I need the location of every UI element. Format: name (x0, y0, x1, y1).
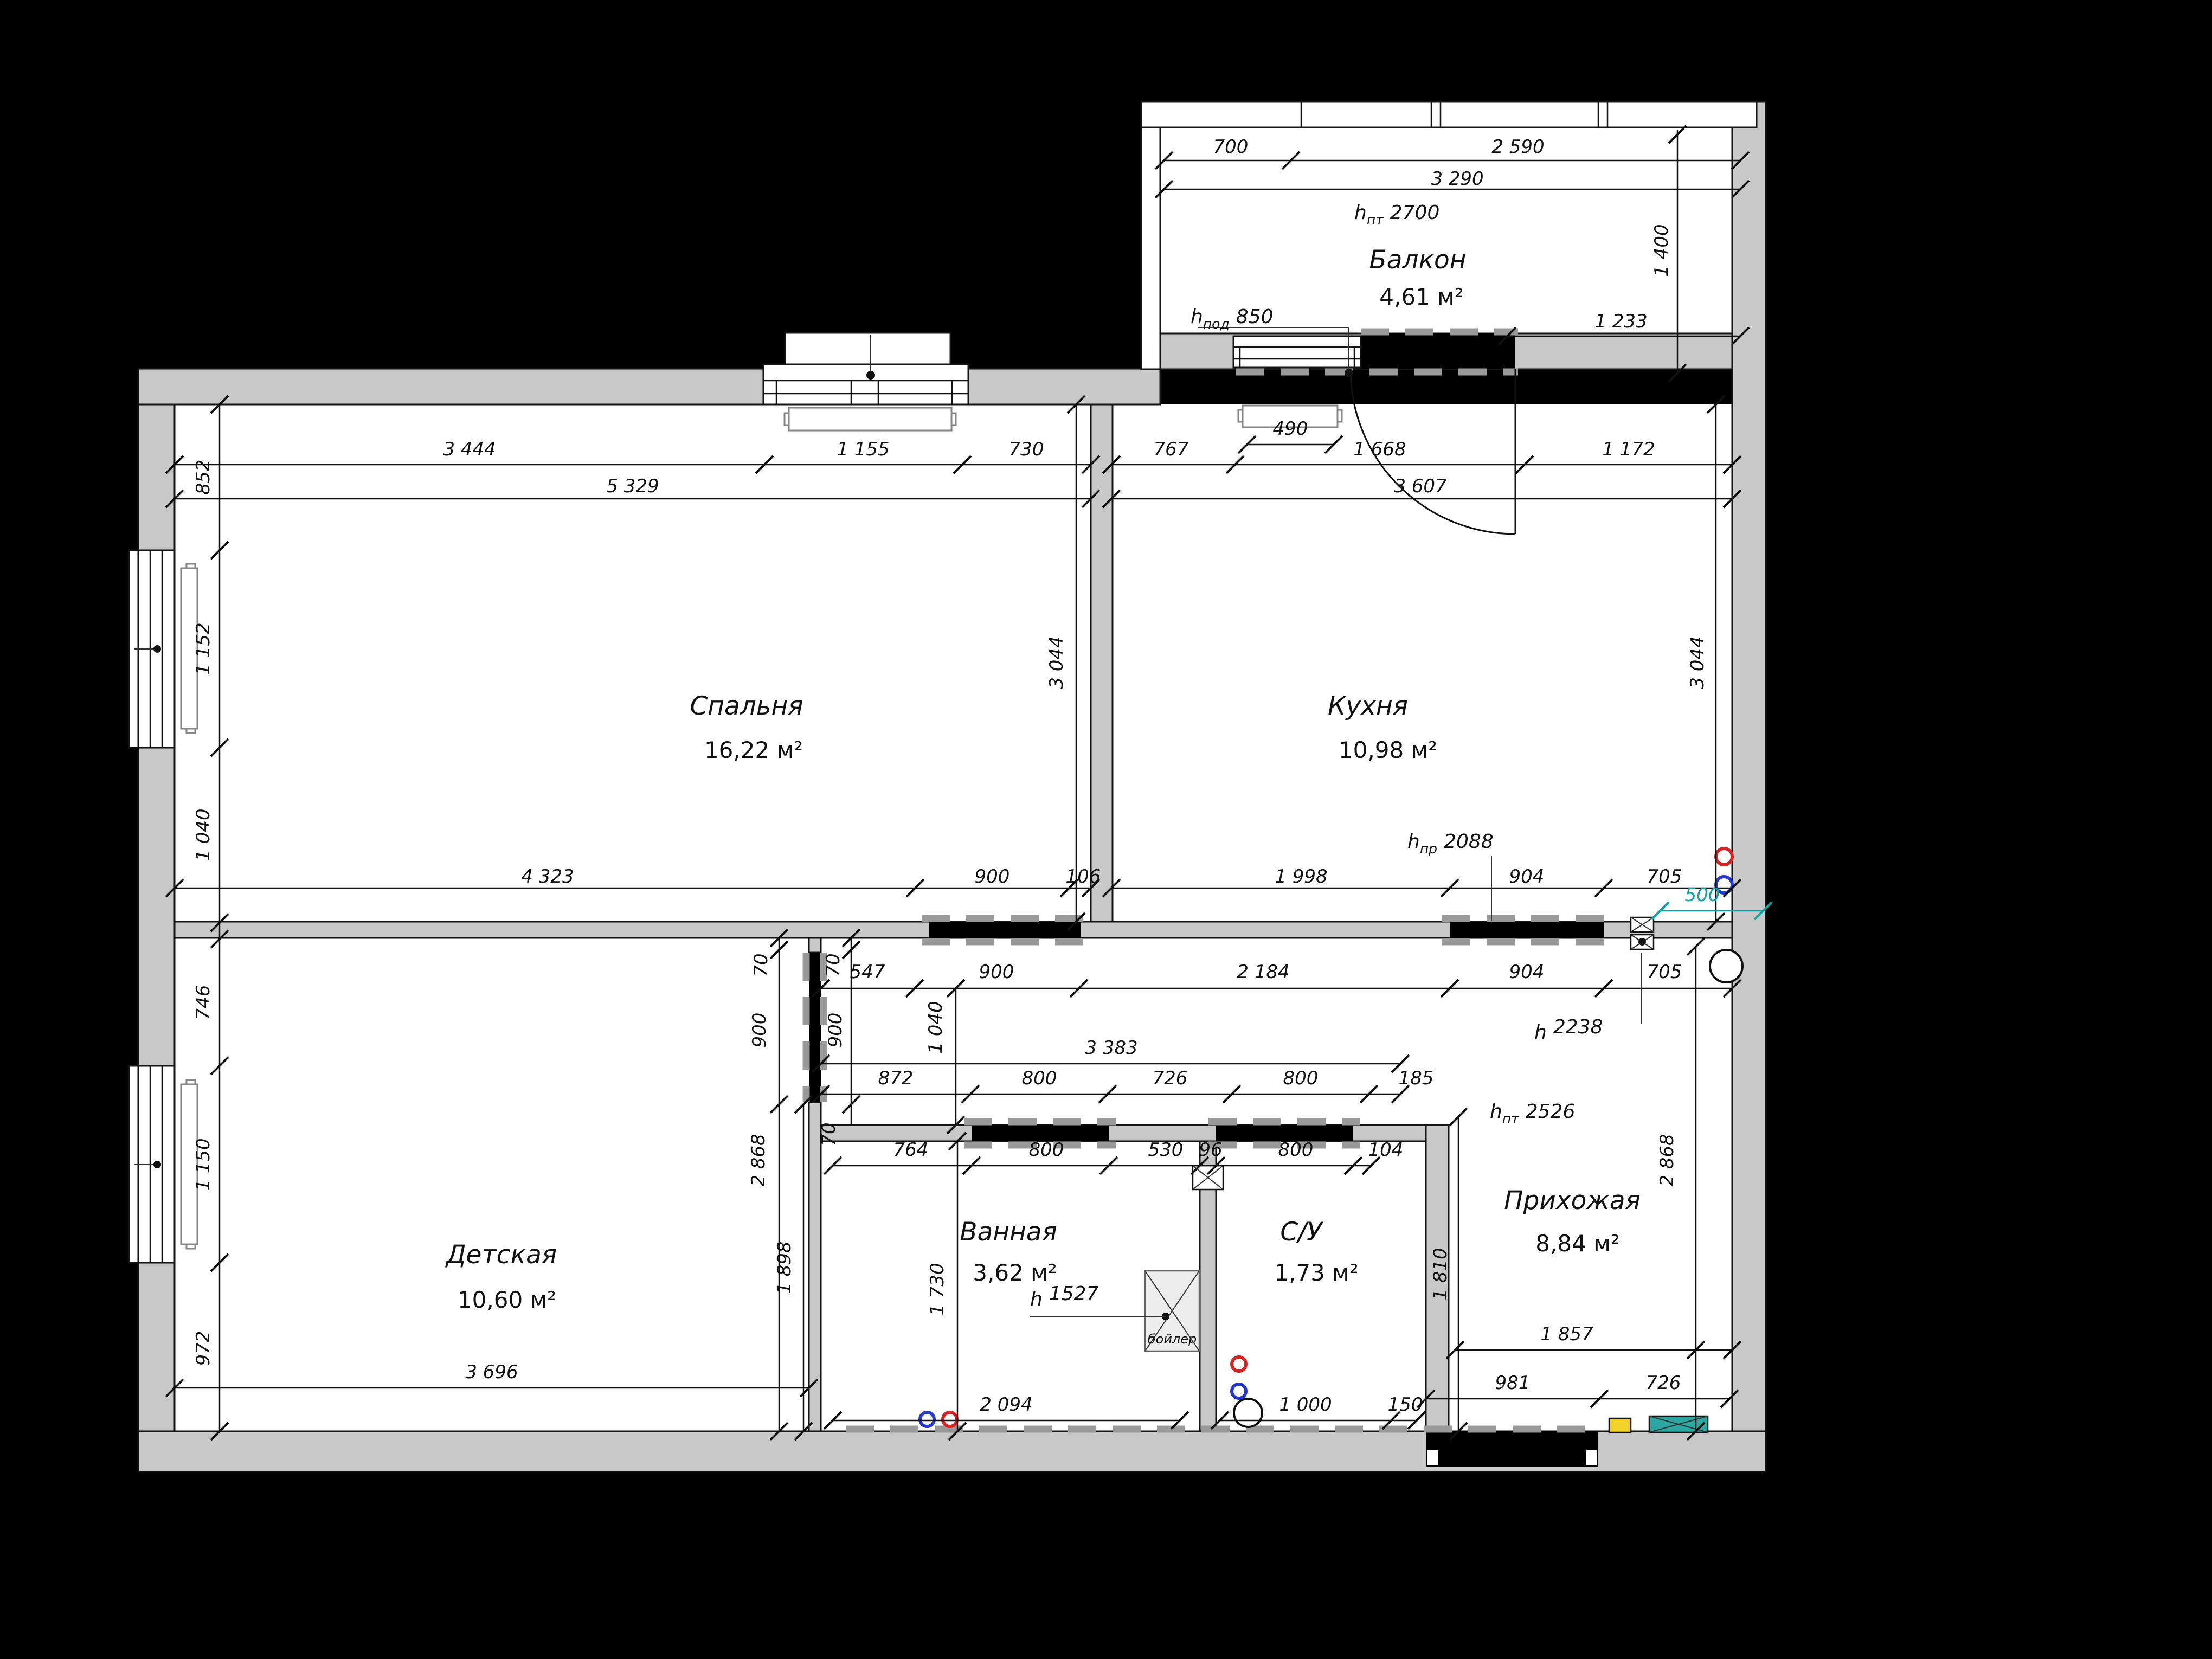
room-label-bedroom: Спальня (690, 691, 803, 721)
dim-bath-800d: 800 (1278, 1139, 1314, 1161)
dim-left-852: 852 (192, 460, 214, 495)
dim-left-1152: 1 152 (192, 622, 214, 675)
children-door-opening (809, 953, 821, 1102)
dim-hall-2868: 2 868 (1656, 1134, 1678, 1186)
electric-panel-icon (1609, 1418, 1631, 1432)
dim-bath-2094: 2 094 (980, 1394, 1032, 1416)
dim-hall-726: 726 (1646, 1372, 1681, 1394)
dim-hall-981: 981 (1495, 1372, 1531, 1394)
dim-children-1898: 1 898 (774, 1241, 795, 1294)
balcony-left-wall (1141, 127, 1160, 369)
dim-corridor-1040: 1 040 (925, 1001, 947, 1053)
wall-right (1732, 102, 1766, 1472)
radiator-left1-cap-t (187, 564, 195, 568)
leader-left-window2-dot (153, 1161, 161, 1168)
dim-corridor-547: 547 (850, 961, 885, 983)
dim-bedroom-4323: 4 323 (521, 866, 574, 888)
dim-corridor-2184: 2 184 (1237, 961, 1289, 983)
dim-bath-726: 726 (1153, 1068, 1188, 1089)
hall-stack-icon (1710, 950, 1742, 982)
wall-bedroom-kitchen (1091, 404, 1113, 922)
dim-duct-900b: 900 (825, 1013, 846, 1048)
boiler-label: бойлер (1148, 1332, 1197, 1347)
dim-children-2868: 2 868 (748, 1134, 769, 1186)
rooms-bottom-floor (175, 938, 1732, 1431)
dim-wc-150: 150 (1388, 1394, 1423, 1416)
dim-bath-530: 530 (1148, 1139, 1184, 1161)
radiator-kitchen-cap-r (1338, 410, 1342, 422)
dim-kitchen-904: 904 (1509, 866, 1545, 888)
dim-corridor-904: 904 (1509, 961, 1545, 983)
leader-balcony-sill-dot (1345, 369, 1353, 377)
dim-left-972: 972 (192, 1331, 214, 1366)
dim-duct-70a: 70 (750, 953, 772, 976)
dim-corridor-705: 705 (1647, 961, 1682, 983)
dim-bedroom-730: 730 (1009, 439, 1044, 460)
dim-bath-800b: 800 (1283, 1068, 1319, 1089)
dim-children-3696: 3 696 (465, 1361, 518, 1383)
dim-bath-800a: 800 (1022, 1068, 1057, 1089)
dim-kitchen-3044: 3 044 (1687, 636, 1708, 689)
dim-bath-764: 764 (893, 1139, 929, 1161)
room-label-hall: Прихожая (1504, 1186, 1641, 1216)
dim-bath-104: 104 (1368, 1139, 1404, 1161)
dim-balcony-2590: 2 590 (1491, 136, 1544, 158)
dim-bedroom-5329: 5 329 (606, 475, 659, 497)
dim-kitchen-767: 767 (1154, 439, 1189, 460)
dim-kitchen-705: 705 (1647, 866, 1682, 888)
radiator-bedroom-icon (789, 408, 951, 430)
kitchen-window-icon (1233, 336, 1361, 368)
wall-children-stub (809, 938, 821, 953)
balcony-door-opening (1361, 333, 1515, 369)
dim-bedroom-3044: 3 044 (1046, 636, 1068, 689)
radiator-left1-cap-b (187, 729, 195, 733)
room-label-balcony: Балкон (1369, 245, 1467, 275)
dim-balcony-1233: 1 233 (1594, 311, 1647, 332)
dim-bath-96: 96 (1199, 1139, 1222, 1161)
room-area-bedroom: 16,22 м² (704, 737, 803, 763)
wall-top-bedroom (138, 369, 1160, 404)
kitchen-door-opening (1450, 922, 1604, 938)
room-label-children: Детская (445, 1240, 557, 1270)
room-label-bathroom: Ванная (960, 1217, 1057, 1247)
floor-plan: Балкон 4,61 м² Спальня 16,22 м² Кухня 10… (0, 0, 2212, 1659)
dim-kitchen-1172: 1 172 (1602, 439, 1655, 460)
bedroom-door-opening (929, 922, 1081, 938)
dim-kitchen-490: 490 (1273, 418, 1308, 440)
leader-bedroom-window-dot (866, 371, 875, 380)
bedroom-window-sill (785, 333, 950, 365)
room-area-balcony: 4,61 м² (1379, 284, 1463, 310)
leader-left-window1-dot (153, 645, 161, 653)
balcony-glazing-band (1141, 102, 1757, 127)
dim-duct-900a: 900 (749, 1013, 770, 1048)
wc-sewer-stack-icon (1234, 1399, 1262, 1427)
radiator-bedroom-cap-l (785, 413, 789, 425)
entrance-jamb-right (1586, 1450, 1597, 1465)
room-area-hall: 8,84 м² (1535, 1230, 1619, 1257)
radiator-kitchen-cap-l (1238, 410, 1243, 422)
dim-balcony-3290: 3 290 (1431, 168, 1483, 190)
dim-teal-500: 500 (1685, 884, 1720, 906)
dim-left-1150: 1 150 (192, 1138, 214, 1191)
room-area-wc: 1,73 м² (1274, 1259, 1358, 1286)
radiator-bedroom-cap-r (951, 413, 956, 425)
radiator-left2-cap-b (187, 1244, 195, 1249)
room-label-kitchen: Кухня (1328, 691, 1408, 721)
dim-bedroom-900: 900 (975, 866, 1010, 888)
dim-balcony-700: 700 (1213, 136, 1249, 158)
dim-corridor-900: 900 (979, 961, 1014, 983)
room-area-bathroom: 3,62 м² (973, 1259, 1057, 1286)
vent-dot (1638, 938, 1646, 946)
dim-bath-1730: 1 730 (927, 1263, 948, 1315)
dim-balcony-1400: 1 400 (1651, 224, 1673, 276)
wall-left (138, 369, 175, 1472)
room-area-kitchen: 10,98 м² (1339, 737, 1437, 763)
dim-kitchen-1668: 1 668 (1353, 439, 1406, 460)
dim-wc-1000: 1 000 (1279, 1394, 1332, 1416)
dim-left-746: 746 (192, 985, 214, 1020)
room-area-children: 10,60 м² (458, 1287, 556, 1313)
dim-bath-185: 185 (1399, 1068, 1434, 1089)
dim-kitchen-3607: 3 607 (1394, 475, 1447, 497)
rooms-top-floor (175, 404, 1732, 922)
dim-duct-70c: 70 (818, 1122, 840, 1146)
dim-bath-800c: 800 (1029, 1139, 1064, 1161)
radiator-left2-cap-t (187, 1080, 195, 1084)
dim-bedroom-3444: 3 444 (443, 439, 496, 460)
dim-bath-872: 872 (878, 1068, 914, 1089)
dim-left-1040: 1 040 (192, 808, 214, 861)
dim-bath-3383: 3 383 (1085, 1037, 1137, 1059)
dim-hall-1857: 1 857 (1540, 1323, 1593, 1345)
dim-bedroom-1155: 1 155 (837, 439, 889, 460)
room-label-wc: С/У (1280, 1217, 1324, 1247)
dim-kitchen-1998: 1 998 (1275, 866, 1327, 888)
dim-bedroom-106: 106 (1066, 866, 1101, 888)
dim-duct-70b: 70 (822, 953, 844, 976)
entrance-jamb-left (1427, 1450, 1438, 1465)
dim-hall-1810: 1 810 (1430, 1248, 1451, 1300)
bedroom-window-icon (763, 364, 968, 404)
